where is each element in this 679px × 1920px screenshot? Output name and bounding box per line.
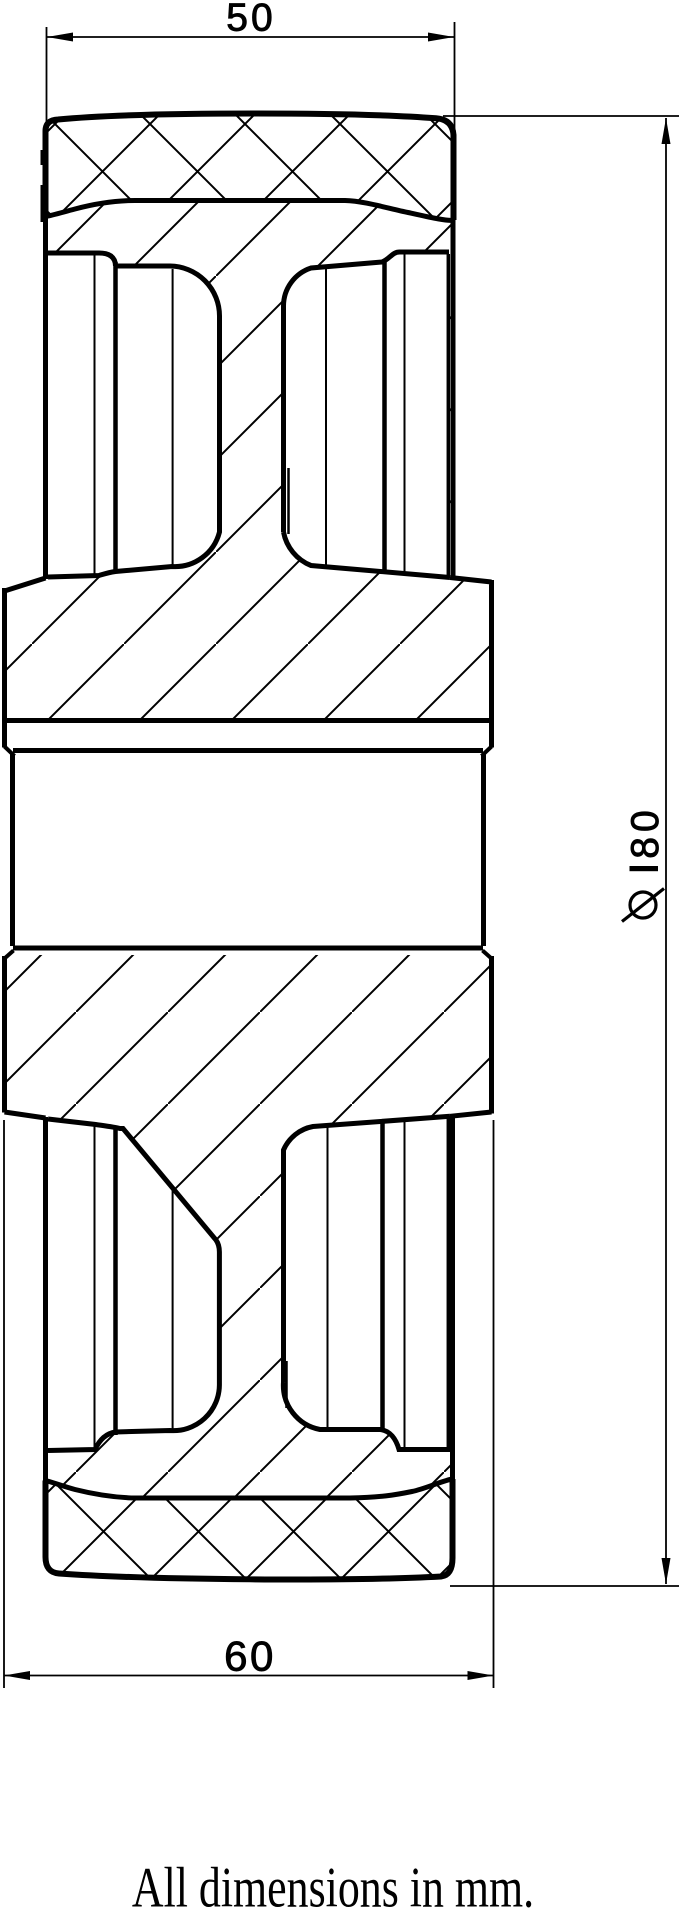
svg-text:All dimensions in mm.: All dimensions in mm. [132,1857,534,1920]
svg-text:60: 60 [224,1633,276,1680]
svg-text:50: 50 [226,0,275,40]
svg-text:80: 80 [624,805,667,858]
